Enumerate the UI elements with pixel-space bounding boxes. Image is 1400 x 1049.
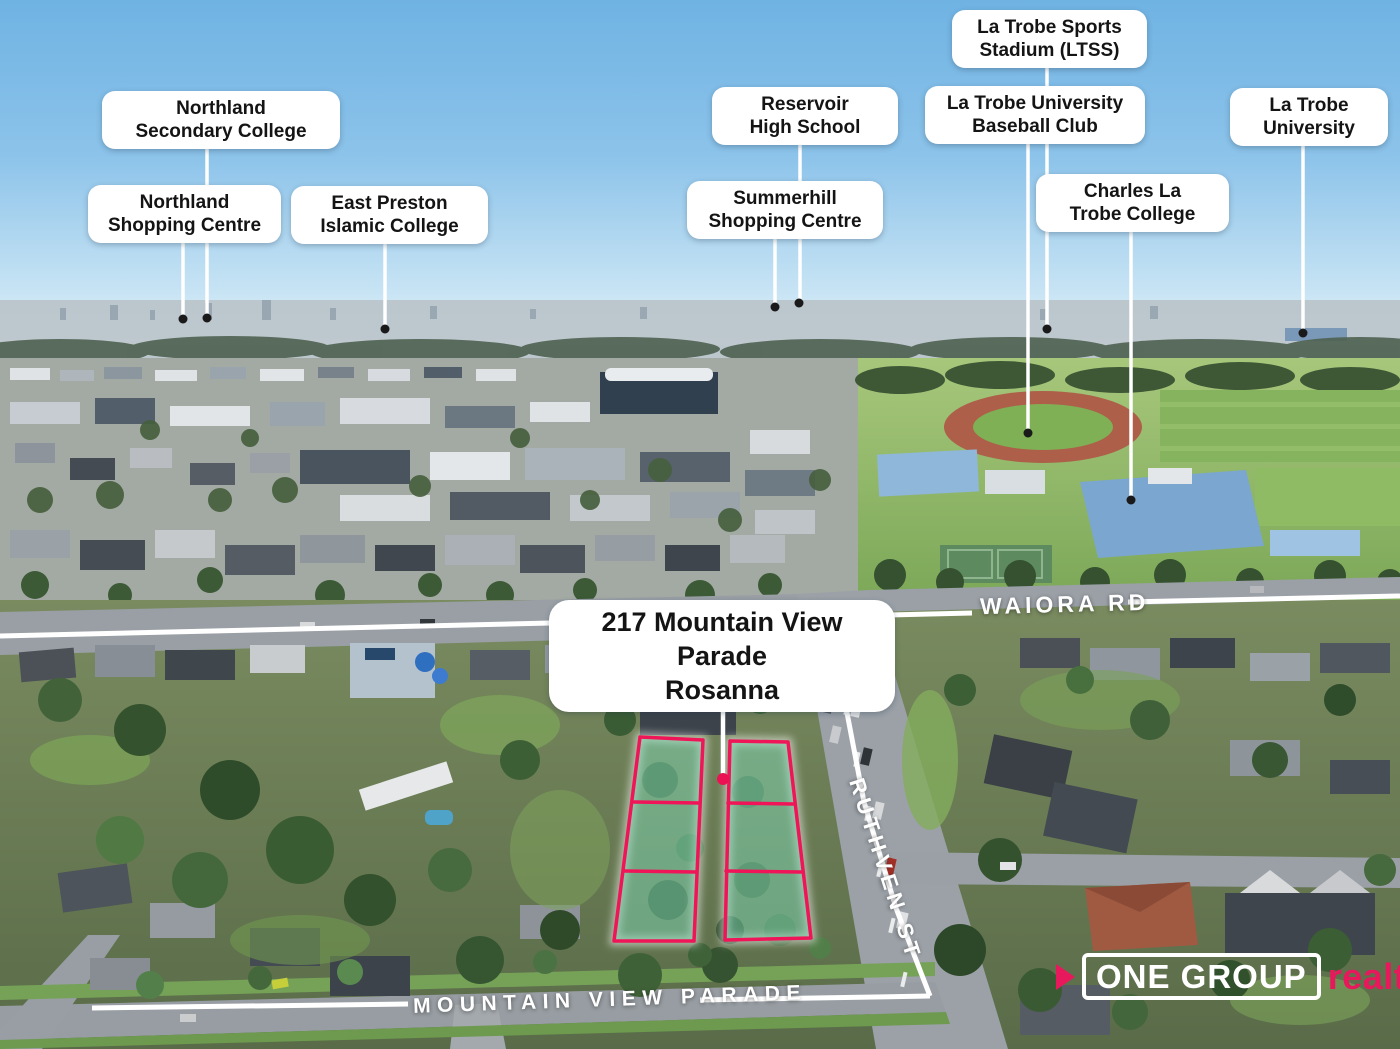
label-east-preston-islamic-college: East Preston Islamic College — [291, 186, 488, 244]
label-northland-shopping-centre: Northland Shopping Centre — [88, 185, 281, 243]
logo-realty: realty — [1328, 956, 1400, 998]
aerial-photo-scene — [0, 0, 1400, 1049]
athletics-field — [973, 404, 1113, 450]
logo-one-group: ONE GROUP — [1082, 953, 1321, 1000]
logo-play-triangle-icon — [1056, 964, 1075, 990]
label-la-trobe-university-baseball-club: La Trobe University Baseball Club — [925, 86, 1145, 144]
label-summerhill-shopping-centre: Summerhill Shopping Centre — [687, 181, 883, 239]
label-la-trobe-sports-stadium: La Trobe Sports Stadium (LTSS) — [952, 10, 1147, 68]
sky — [0, 0, 1400, 345]
label-northland-secondary-college: Northland Secondary College — [102, 91, 340, 149]
label-property-address: 217 Mountain View Parade Rosanna — [549, 600, 895, 712]
label-reservoir-high-school: Reservoir High School — [712, 87, 898, 145]
property-marker-dot — [717, 773, 729, 785]
agency-logo: ONE GROUP realty — [1056, 953, 1400, 1000]
label-la-trobe-university: La Trobe University — [1230, 88, 1388, 146]
street-label-waiora-rd: WAIORA RD — [980, 589, 1150, 620]
label-charles-la-trobe-college: Charles La Trobe College — [1036, 174, 1229, 232]
aerial-listing-photo: Northland Secondary College Northland Sh… — [0, 0, 1400, 1049]
